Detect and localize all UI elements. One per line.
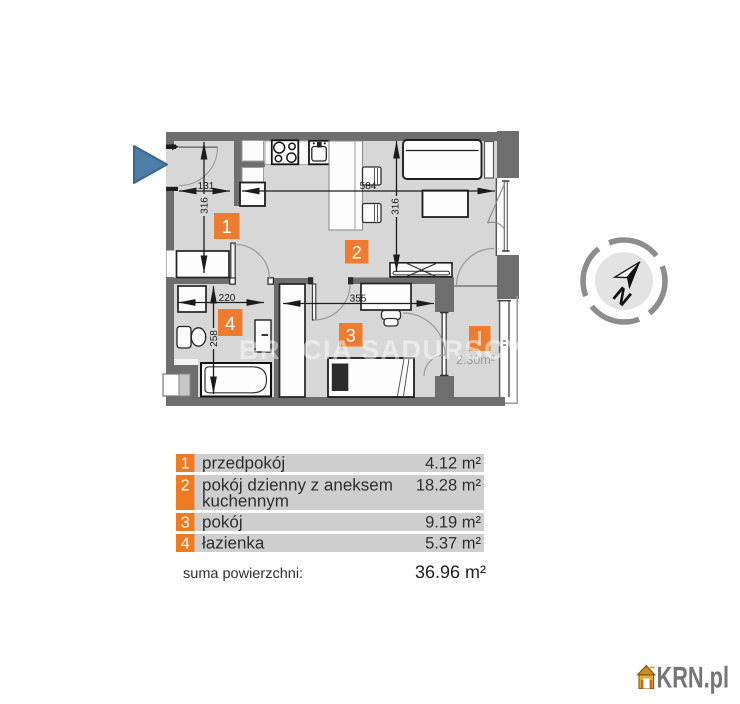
svg-text:5.37 m²: 5.37 m² bbox=[425, 535, 481, 553]
svg-text:9.19 m²: 9.19 m² bbox=[425, 514, 481, 532]
svg-text:1: 1 bbox=[181, 456, 190, 473]
svg-text:BRACIA SADURSCY: BRACIA SADURSCY bbox=[239, 335, 525, 365]
svg-text:220: 220 bbox=[219, 293, 236, 304]
svg-text:KRN.pl: KRN.pl bbox=[657, 662, 730, 695]
svg-text:584: 584 bbox=[360, 181, 377, 192]
svg-text:pokój: pokój bbox=[202, 513, 243, 532]
svg-text:316: 316 bbox=[391, 198, 402, 215]
svg-text:kuchennym: kuchennym bbox=[202, 492, 289, 511]
svg-text:2: 2 bbox=[352, 243, 362, 263]
svg-text:18.28 m²: 18.28 m² bbox=[416, 477, 482, 495]
svg-text:4.12 m²: 4.12 m² bbox=[425, 455, 481, 473]
svg-text:36.96 m²: 36.96 m² bbox=[415, 562, 486, 582]
svg-text:przedpokój: przedpokój bbox=[202, 454, 285, 473]
svg-text:4: 4 bbox=[181, 536, 190, 553]
svg-text:łazienka: łazienka bbox=[202, 534, 265, 553]
svg-text:355: 355 bbox=[350, 294, 367, 305]
svg-text:2: 2 bbox=[181, 478, 190, 495]
svg-text:4: 4 bbox=[225, 314, 236, 335]
svg-text:suma powierzchni:: suma powierzchni: bbox=[183, 566, 303, 582]
svg-text:131: 131 bbox=[198, 181, 215, 192]
svg-text:1: 1 bbox=[221, 217, 232, 238]
svg-text:316: 316 bbox=[200, 197, 211, 214]
svg-text:3: 3 bbox=[181, 515, 190, 532]
